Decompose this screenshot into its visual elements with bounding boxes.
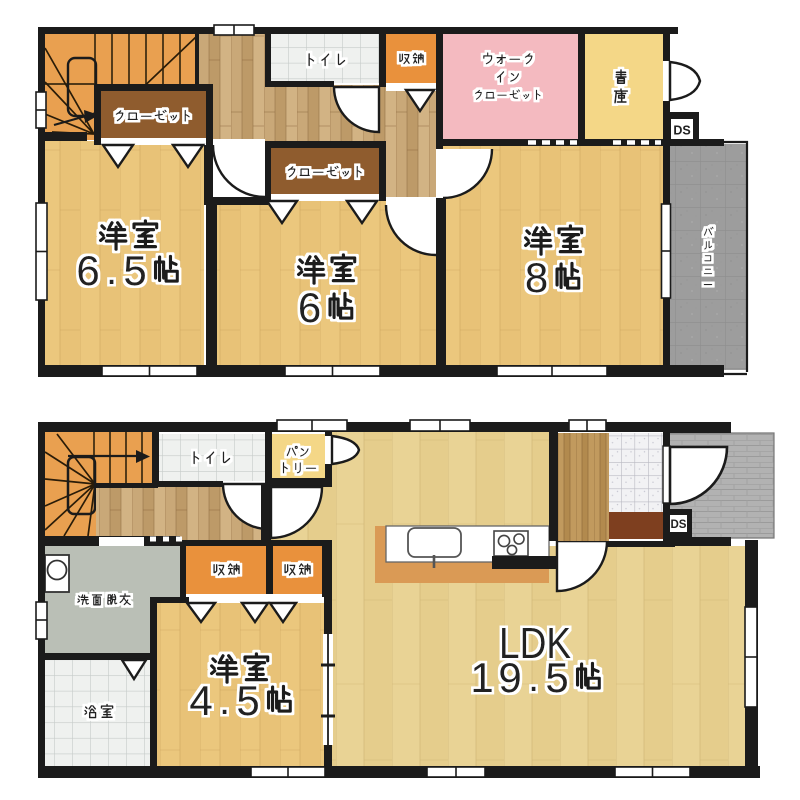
svg-text:.: . xyxy=(106,249,117,293)
svg-text:5: 5 xyxy=(123,247,146,294)
svg-text:8: 8 xyxy=(525,254,548,301)
svg-text:DS: DS xyxy=(671,519,687,531)
svg-text:4: 4 xyxy=(189,677,212,724)
svg-text:5: 5 xyxy=(236,677,259,724)
svg-text:6: 6 xyxy=(76,247,99,294)
svg-text:9: 9 xyxy=(498,654,521,701)
svg-text:5: 5 xyxy=(545,654,568,701)
svg-text:.: . xyxy=(219,679,230,723)
svg-text:.: . xyxy=(528,656,539,700)
svg-text:6: 6 xyxy=(298,284,321,331)
svg-text:1: 1 xyxy=(470,654,493,701)
svg-text:DS: DS xyxy=(673,124,690,138)
